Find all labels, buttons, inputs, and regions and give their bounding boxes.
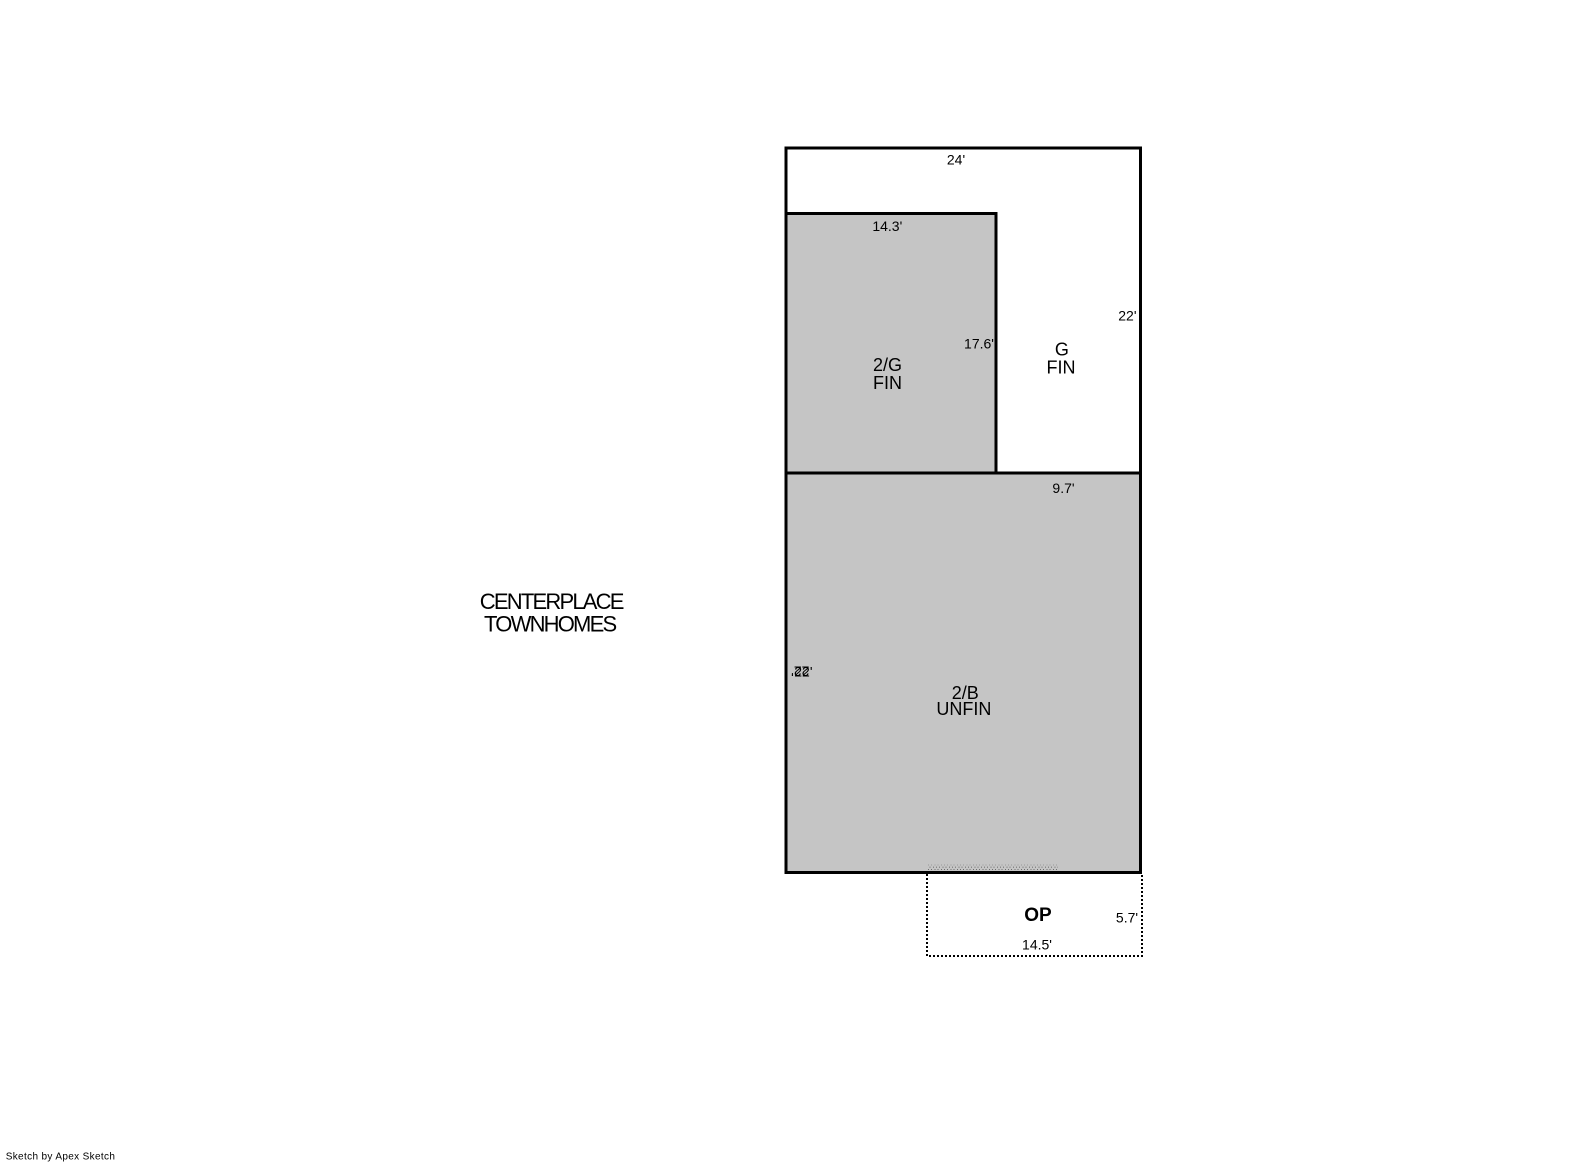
svg-text:CENTERPLACE: CENTERPLACE — [480, 589, 624, 614]
svg-text:FIN: FIN — [873, 373, 902, 393]
svg-text:22': 22' — [791, 663, 809, 679]
svg-text:22': 22' — [1118, 307, 1136, 323]
svg-text:UNFIN: UNFIN — [936, 699, 991, 719]
svg-text:FIN: FIN — [1047, 357, 1076, 377]
svg-text:14.3': 14.3' — [872, 218, 902, 234]
svg-text:24': 24' — [947, 152, 965, 168]
svg-text:OP: OP — [1024, 905, 1052, 926]
svg-text:TOWNHOMES: TOWNHOMES — [484, 612, 616, 637]
svg-text:17.6': 17.6' — [964, 336, 994, 352]
svg-text:Sketch by Apex Sketch: Sketch by Apex Sketch — [6, 1152, 116, 1163]
svg-text:5.7': 5.7' — [1116, 909, 1138, 925]
svg-text:14.5': 14.5' — [1022, 936, 1052, 952]
svg-text:9.7': 9.7' — [1052, 480, 1074, 496]
